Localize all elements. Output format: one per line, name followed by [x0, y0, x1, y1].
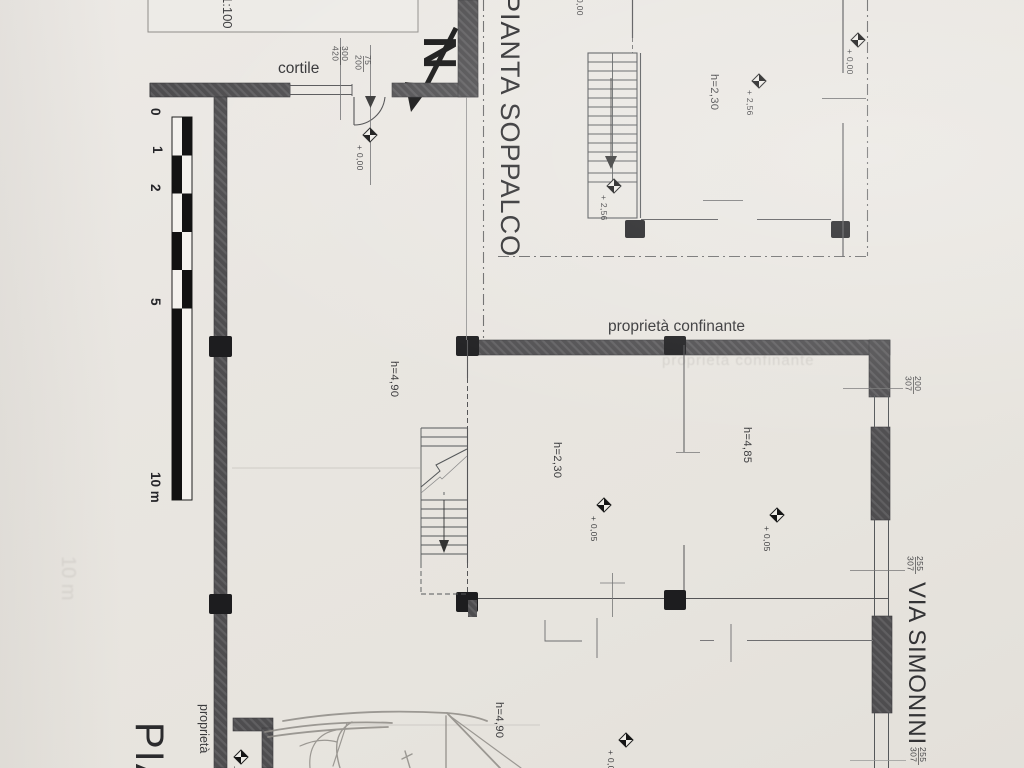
- height-label-bottom: h=4,90: [493, 702, 505, 738]
- dim-numerator: 75: [363, 55, 373, 70]
- column: [831, 221, 850, 238]
- dim-denominator: 307: [905, 556, 915, 571]
- property-boundary-label-left: proprietà: [197, 704, 211, 753]
- stairs-main: [421, 428, 467, 594]
- scalebar-label-10: 10 m: [148, 472, 163, 503]
- dim-denominator: 420: [330, 46, 340, 61]
- scalebar-label-5: 5: [148, 298, 163, 306]
- scale-label: 1:100: [220, 0, 235, 29]
- right-wall: [843, 389, 906, 768]
- window-top: [290, 84, 352, 96]
- level-text-mid-left: + 0,05: [589, 516, 599, 542]
- scalebar-label-2: 2: [148, 184, 163, 192]
- column: [664, 590, 686, 610]
- north-arrow-icon: N: [405, 28, 466, 112]
- dim-denominator: 307: [903, 376, 913, 391]
- level-text-stair-top: + 2,56: [599, 195, 609, 221]
- height-label-mid-left: h=4,90: [388, 361, 400, 397]
- boundary-dashed: [484, 0, 868, 338]
- construction-lines: [232, 468, 540, 725]
- dimension-lines-top: [341, 38, 919, 765]
- dim-numerator: 255: [918, 747, 928, 762]
- dimension-300-420: 300 420: [330, 46, 349, 61]
- soppalco-plan: [588, 0, 866, 257]
- courtyard-label: cortile: [278, 60, 319, 78]
- column: [209, 594, 232, 614]
- level-text-mid-right: + 0,05: [762, 526, 772, 552]
- height-label-mid-center: h=2,30: [551, 442, 563, 478]
- dim-numerator: 255: [915, 556, 925, 571]
- ghost-text-confinante: proprietà confinante: [662, 352, 815, 369]
- street-label: VIA SIMONINI: [902, 582, 930, 745]
- ghost-text-10m: 10 m: [56, 556, 79, 600]
- level-marker-icon: [234, 750, 248, 764]
- level-marker-icon: [619, 733, 633, 747]
- scanned-floor-plan: N: [0, 0, 1024, 768]
- level-text-top-edge: 0,00: [575, 0, 585, 16]
- height-label-soppalco: h=2,30: [708, 74, 720, 110]
- level-marker-icon: [770, 508, 784, 522]
- level-text-door: + 0,00: [355, 145, 365, 171]
- bottom-partitions: [545, 618, 873, 662]
- dimension-255-307-b: 255 307: [908, 747, 927, 762]
- level-marker-icon: [363, 128, 377, 142]
- scale-bar: [172, 117, 192, 500]
- dimension-75-200: 75 200: [353, 55, 372, 70]
- scalebar-label-1: 1: [150, 146, 165, 154]
- title-box: [148, 0, 418, 32]
- pencil-sketch: [265, 712, 521, 768]
- top-right-wall: [458, 0, 478, 97]
- scalebar-label-0: 0: [148, 108, 163, 116]
- dim-numerator: 300: [340, 46, 350, 61]
- property-boundary-label: proprietà confinante: [608, 318, 745, 336]
- column: [209, 336, 232, 357]
- top-wall: [150, 83, 478, 125]
- level-marker-icon: [607, 179, 621, 193]
- dim-denominator: 307: [908, 747, 918, 762]
- level-marker-icon: [851, 33, 865, 47]
- left-wall: [209, 97, 232, 768]
- dimension-255-307: 255 307: [905, 556, 924, 571]
- level-marker-icon: [597, 498, 611, 512]
- dim-denominator: 200: [353, 55, 363, 70]
- level-text-soppalco-right: + 0,00: [845, 49, 855, 75]
- level-text-soppalco-room: + 2,56: [745, 90, 755, 116]
- level-text-bottom-room: + 0,00: [606, 750, 616, 768]
- height-label-mid-right: h=4,85: [741, 427, 753, 463]
- level-markers: [234, 33, 865, 764]
- dim-numerator: 200: [913, 376, 923, 391]
- plan-title-partial: PIA: [126, 722, 171, 768]
- level-marker-icon: [752, 74, 766, 88]
- dimension-200-307: 200 307: [903, 376, 922, 391]
- column: [625, 220, 645, 238]
- plan-title-soppalco: PIANTA SOPPALCO: [494, 0, 525, 257]
